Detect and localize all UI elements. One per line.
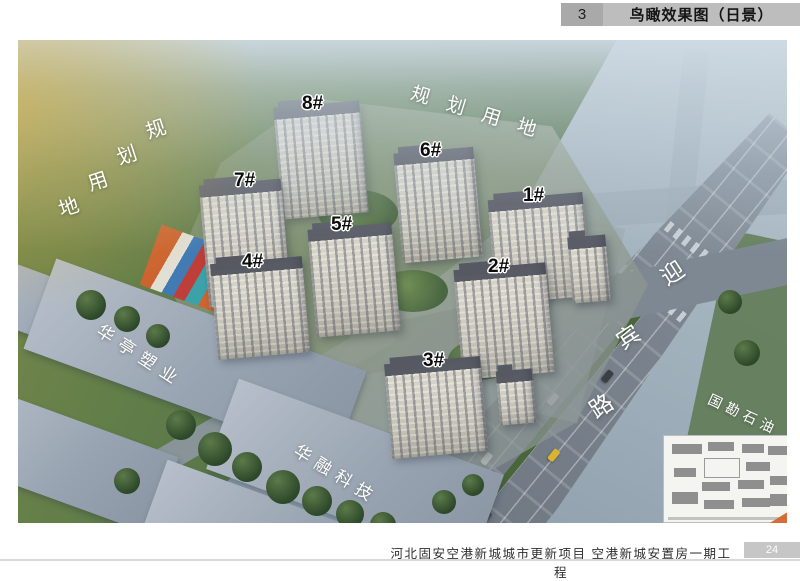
- sun-glow: [18, 40, 298, 340]
- label-building-8: 8#: [302, 94, 323, 113]
- label-building-3: 3#: [423, 351, 444, 370]
- label-building-6: 6#: [420, 141, 441, 160]
- project-title: 河北固安空港新城城市更新项目 空港新城安置房一期工程: [385, 543, 737, 581]
- inset-building: [674, 468, 696, 477]
- inset-building: [672, 444, 702, 454]
- slide-title: 鸟瞰效果图（日景）: [603, 3, 800, 26]
- inset-building: [742, 444, 764, 453]
- inset-building: [702, 482, 730, 491]
- north-arrow-icon: [762, 494, 787, 523]
- label-building-5: 5#: [331, 215, 352, 234]
- inset-building: [746, 462, 770, 471]
- inset-building: [704, 500, 734, 509]
- label-building-2: 2#: [488, 257, 509, 276]
- slide-header: 3 鸟瞰效果图（日景）: [561, 3, 800, 26]
- inset-building: [738, 480, 764, 489]
- inset-building: [672, 492, 698, 504]
- inset-building: [768, 446, 787, 455]
- inset-building: [708, 442, 734, 451]
- footer-divider: [0, 559, 800, 561]
- label-building-4: 4#: [242, 252, 263, 271]
- aerial-rendering: 8# 7# 6# 5# 4# 1# 2# 3# 规 划 用 地 规划用地 华亭塑…: [18, 40, 787, 523]
- page-number: 24: [744, 542, 800, 558]
- label-building-1: 1#: [523, 186, 544, 205]
- section-number: 3: [561, 3, 603, 26]
- inset-building: [704, 458, 740, 478]
- inset-building: [770, 476, 787, 485]
- label-building-7: 7#: [234, 171, 255, 190]
